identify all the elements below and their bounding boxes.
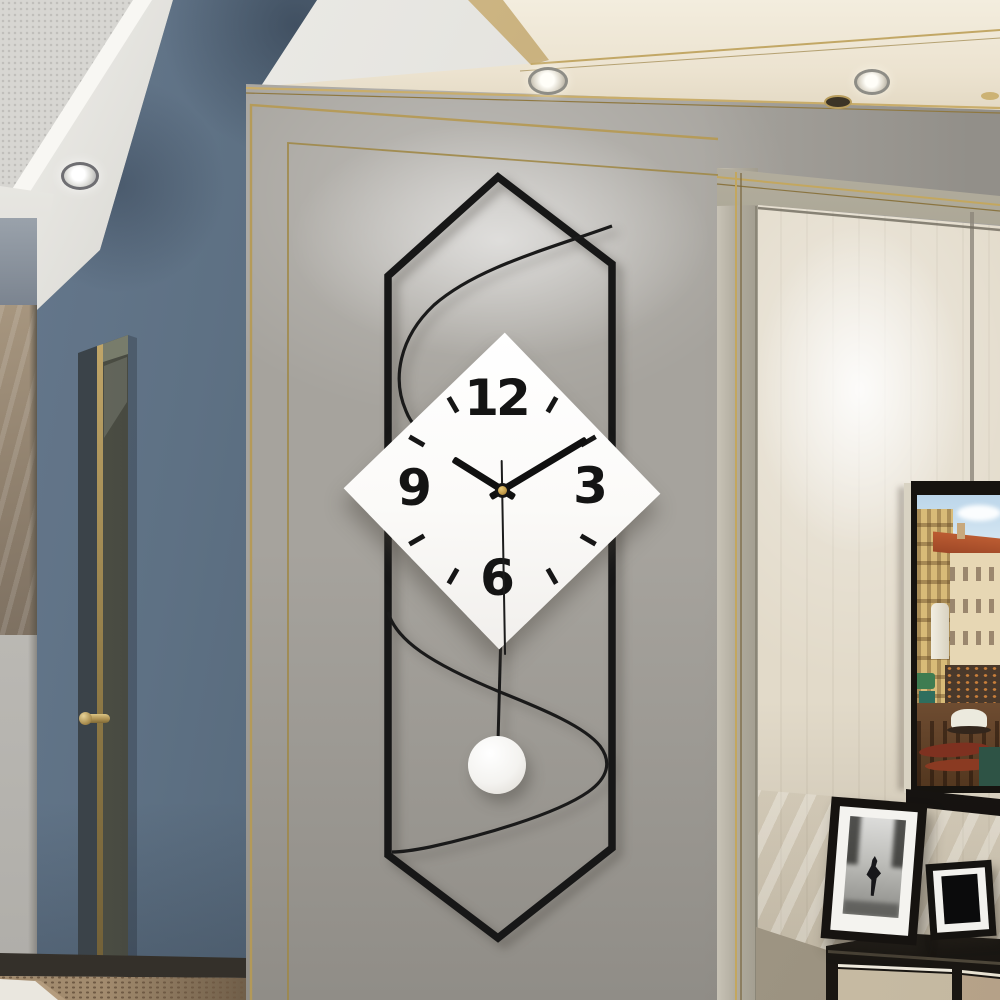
dark-abstract-print	[941, 874, 980, 924]
venice-artwork	[917, 495, 1000, 786]
artwork-window-row	[950, 599, 1000, 613]
small-ceiling-fixture-icon	[981, 92, 999, 100]
artwork-market-stalls	[945, 665, 1000, 707]
recessed-spotlight-icon	[61, 162, 99, 190]
artwork-chimney	[957, 523, 965, 539]
clock-numeral-6: 6	[480, 549, 512, 607]
clock-numeral-12: 12	[464, 369, 528, 427]
lower-panel-edge	[28, 635, 37, 960]
recessed-spotlight-icon	[528, 67, 568, 95]
photo-couple-silhouette	[864, 855, 883, 896]
artwork-white-tower	[931, 603, 949, 659]
artwork-green-awning	[917, 673, 935, 689]
clock-pendulum-ball	[468, 736, 526, 794]
artwork-cloud	[957, 505, 1000, 521]
marble-panel-edge	[29, 305, 37, 638]
greige-molding-vertical	[717, 168, 758, 1000]
door-handle-knob	[79, 712, 92, 725]
interior-scene: 12 3 6 9	[0, 0, 1000, 1000]
left-wall-slate-panel	[0, 218, 37, 314]
artwork-boat-hull	[947, 726, 991, 734]
artwork-window-row	[950, 631, 1000, 645]
artwork-water	[979, 747, 1000, 786]
clock-numeral-3: 3	[573, 457, 605, 515]
artwork-window-row	[950, 567, 1000, 581]
wainscot-panel-seam	[970, 212, 974, 487]
clock-center-pin	[498, 486, 507, 495]
clock-numeral-9: 9	[397, 459, 429, 517]
dancing-couple-photo	[843, 816, 907, 918]
photo-frame-large	[821, 796, 928, 945]
recessed-spotlight-icon	[854, 69, 890, 95]
small-ceiling-fixture-icon	[824, 95, 852, 109]
photo-frame-small	[925, 860, 996, 940]
